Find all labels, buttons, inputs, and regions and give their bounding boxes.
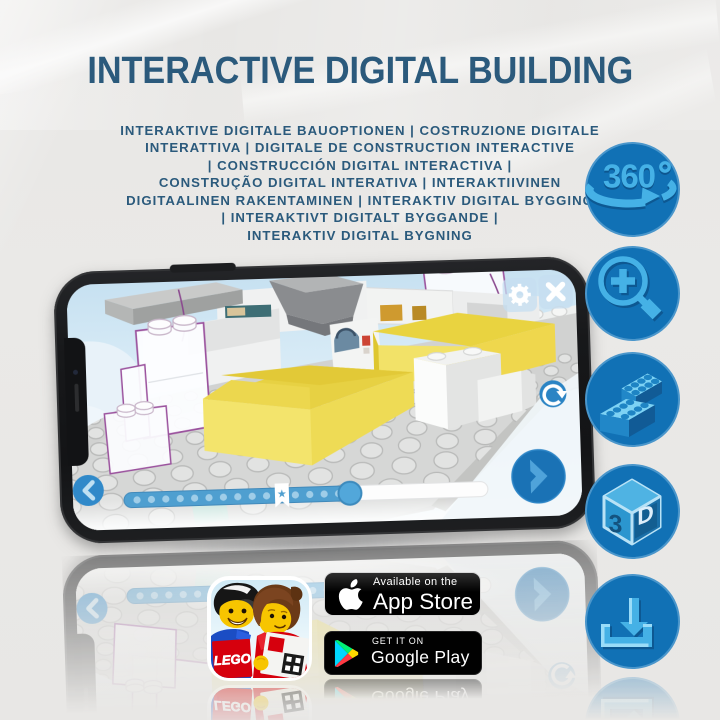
svg-text:3: 3 bbox=[609, 509, 623, 539]
svg-text:★: ★ bbox=[277, 488, 287, 500]
svg-text:360: 360 bbox=[603, 157, 655, 194]
svg-text:LEGO: LEGO bbox=[213, 650, 251, 668]
